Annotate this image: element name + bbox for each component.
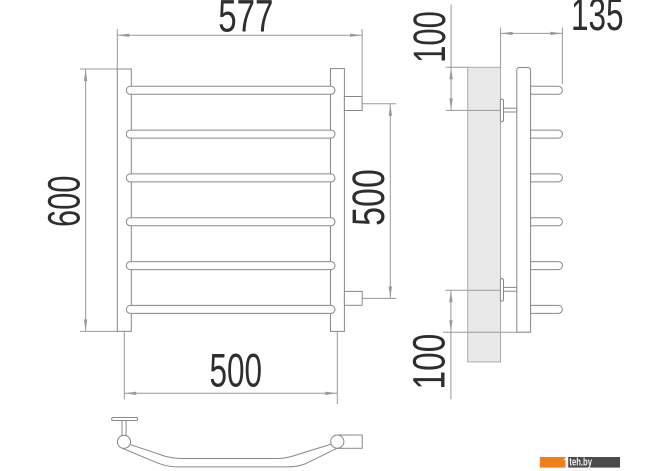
svg-text:600: 600 xyxy=(40,176,90,228)
svg-text:100: 100 xyxy=(405,334,455,390)
svg-text:500: 500 xyxy=(210,345,263,397)
svg-text:teh.by: teh.by xyxy=(569,456,592,468)
svg-text:135: 135 xyxy=(571,0,624,41)
svg-text:577: 577 xyxy=(218,0,273,42)
svg-text:100: 100 xyxy=(405,11,455,63)
svg-text:500: 500 xyxy=(344,169,394,226)
